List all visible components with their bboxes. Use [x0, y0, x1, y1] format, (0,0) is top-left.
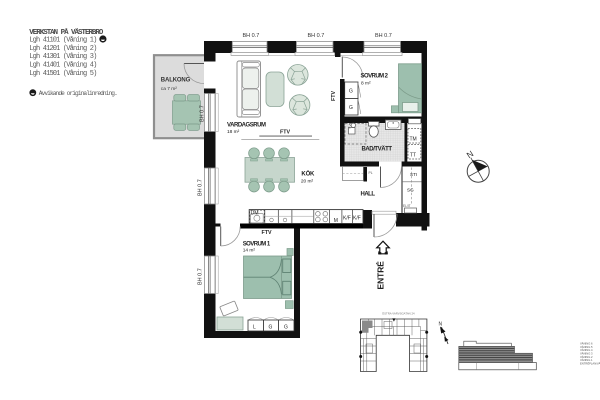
svg-text:BH 0.7: BH 0.7	[308, 33, 325, 39]
svg-text:BH 0.7: BH 0.7	[198, 179, 204, 196]
svg-text:BALKONG: BALKONG	[161, 78, 191, 84]
svg-text:K/F: K/F	[343, 215, 351, 221]
svg-text:N: N	[439, 322, 443, 328]
svg-text:VARDAGSRUM: VARDAGSRUM	[227, 123, 266, 129]
svg-text:KÖK: KÖK	[301, 171, 315, 178]
svg-text:FTV: FTV	[262, 230, 272, 236]
svg-text:Lgh 41401 (Våning 4): Lgh 41401 (Våning 4)	[29, 61, 97, 70]
svg-text:G: G	[349, 89, 353, 95]
svg-text:G: G	[269, 325, 273, 331]
svg-text:STI: STI	[410, 172, 417, 177]
svg-text:L: L	[253, 325, 256, 331]
svg-text:Avvikande originalinredning.: Avvikande originalinredning.	[39, 90, 118, 97]
svg-text:SG: SG	[407, 188, 414, 193]
svg-text:8 m²: 8 m²	[361, 80, 371, 86]
svg-text:18 m²: 18 m²	[227, 129, 240, 135]
svg-text:Lgh 41101 (Våning 1): Lgh 41101 (Våning 1)	[29, 35, 97, 44]
svg-text:TM: TM	[410, 137, 417, 143]
svg-text:G: G	[349, 105, 353, 111]
svg-text:DM: DM	[251, 211, 259, 217]
svg-text:SOVRUM 1: SOVRUM 1	[243, 241, 271, 247]
svg-text:G: G	[284, 325, 288, 331]
svg-text:BH 0.7: BH 0.7	[243, 33, 260, 39]
svg-text:Lgh 41301 (Våning 3): Lgh 41301 (Våning 3)	[29, 52, 97, 61]
svg-text:FTV: FTV	[331, 91, 337, 101]
svg-text:Lgh 41201 (Våning 2): Lgh 41201 (Våning 2)	[29, 44, 97, 53]
svg-text:M: M	[334, 218, 338, 224]
svg-text:BH 0.7: BH 0.7	[198, 268, 204, 285]
svg-text:SOVRUM 2: SOVRUM 2	[361, 74, 389, 80]
svg-text:14 m²: 14 m²	[243, 247, 256, 253]
svg-text:BH 0.7: BH 0.7	[375, 33, 392, 39]
svg-text:HALL: HALL	[361, 191, 376, 197]
svg-text:ENTRÉ: ENTRÉ	[375, 261, 386, 290]
svg-text:FTV: FTV	[280, 130, 290, 136]
svg-text:TT: TT	[410, 153, 416, 159]
svg-text:ÖSTRA VARVSGATAN 24: ÖSTRA VARVSGATAN 24	[382, 312, 415, 316]
svg-text:BH 0.7: BH 0.7	[200, 105, 206, 122]
svg-text:Lgh 41501 (Våning 5): Lgh 41501 (Våning 5)	[29, 69, 97, 78]
svg-text:ca 7 m²: ca 7 m²	[161, 86, 177, 92]
svg-text:BAD/TVÄTT: BAD/TVÄTT	[362, 146, 393, 153]
svg-text:EL/IT: EL/IT	[403, 204, 411, 208]
svg-text:20 m²: 20 m²	[301, 178, 314, 184]
svg-text:PL: PL	[369, 171, 373, 175]
svg-text:K/F: K/F	[353, 215, 361, 221]
